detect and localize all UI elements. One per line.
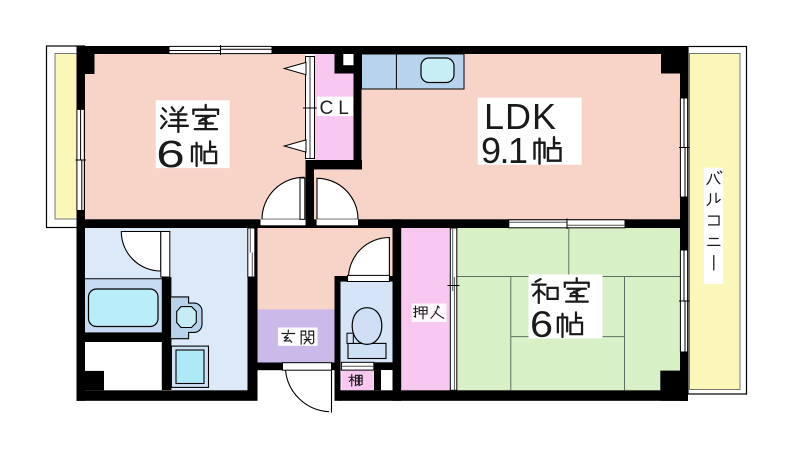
- svg-text:9.1: 9.1: [481, 130, 527, 171]
- svg-text:6: 6: [156, 134, 185, 176]
- svg-text:CL: CL: [320, 98, 354, 119]
- svg-text:6: 6: [530, 304, 553, 345]
